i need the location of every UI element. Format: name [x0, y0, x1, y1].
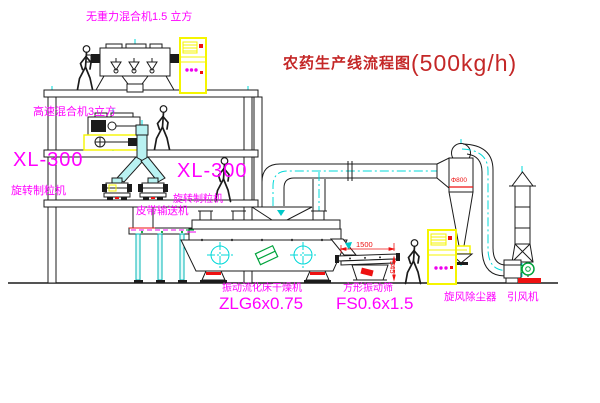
label-granulator-mid-name: 旋转制粒机	[173, 195, 223, 205]
title-capacity: (500kg/h)	[411, 50, 517, 76]
label-cyclone: 旋风除尘器	[444, 292, 497, 303]
control-cabinet-upper	[180, 38, 206, 93]
label-screen-name: 方形振动筛	[343, 284, 393, 294]
dimension-cyclone-diameter: Φ800	[451, 178, 467, 185]
person-second-level	[155, 106, 170, 150]
label-high-speed-mixer: 高速混合机3立方	[33, 107, 116, 118]
label-granulator-left-model: XL-300	[13, 150, 84, 170]
dimension-screen-length: 1500	[356, 241, 373, 249]
dimension-screen-height: 545	[389, 261, 397, 274]
title-text: 农药生产线流程图	[283, 55, 411, 72]
label-dryer-model: ZLG6x0.75	[219, 295, 303, 312]
label-granulator-mid-model: XL-300	[177, 161, 248, 181]
drawing-title: 农药生产线流程图(500kg/h)	[283, 50, 517, 77]
control-cabinet-lower	[428, 230, 456, 284]
label-gravity-free-mixer: 无重力混合机1.5 立方	[86, 12, 192, 23]
fluid-bed-dryer	[181, 207, 347, 283]
cad-process-flow-sheet: 农药生产线流程图(500kg/h) 无重力混合机1.5 立方 高速混合机3立方 …	[0, 0, 600, 403]
label-dryer-name: 振动流化床干燥机	[222, 284, 302, 294]
label-fan: 引风机	[507, 292, 539, 303]
granulator-right-unit	[138, 178, 168, 200]
granulator-left-unit	[102, 178, 132, 200]
person-roof-level	[78, 46, 93, 90]
gravity-free-mixer	[86, 39, 186, 92]
label-granulator-left-name: 旋转制粒机	[11, 186, 66, 197]
label-belt-conveyor: 皮带输送机	[136, 206, 189, 217]
person-ground-level	[406, 240, 421, 284]
label-screen-model: FS0.6x1.5	[336, 295, 414, 312]
